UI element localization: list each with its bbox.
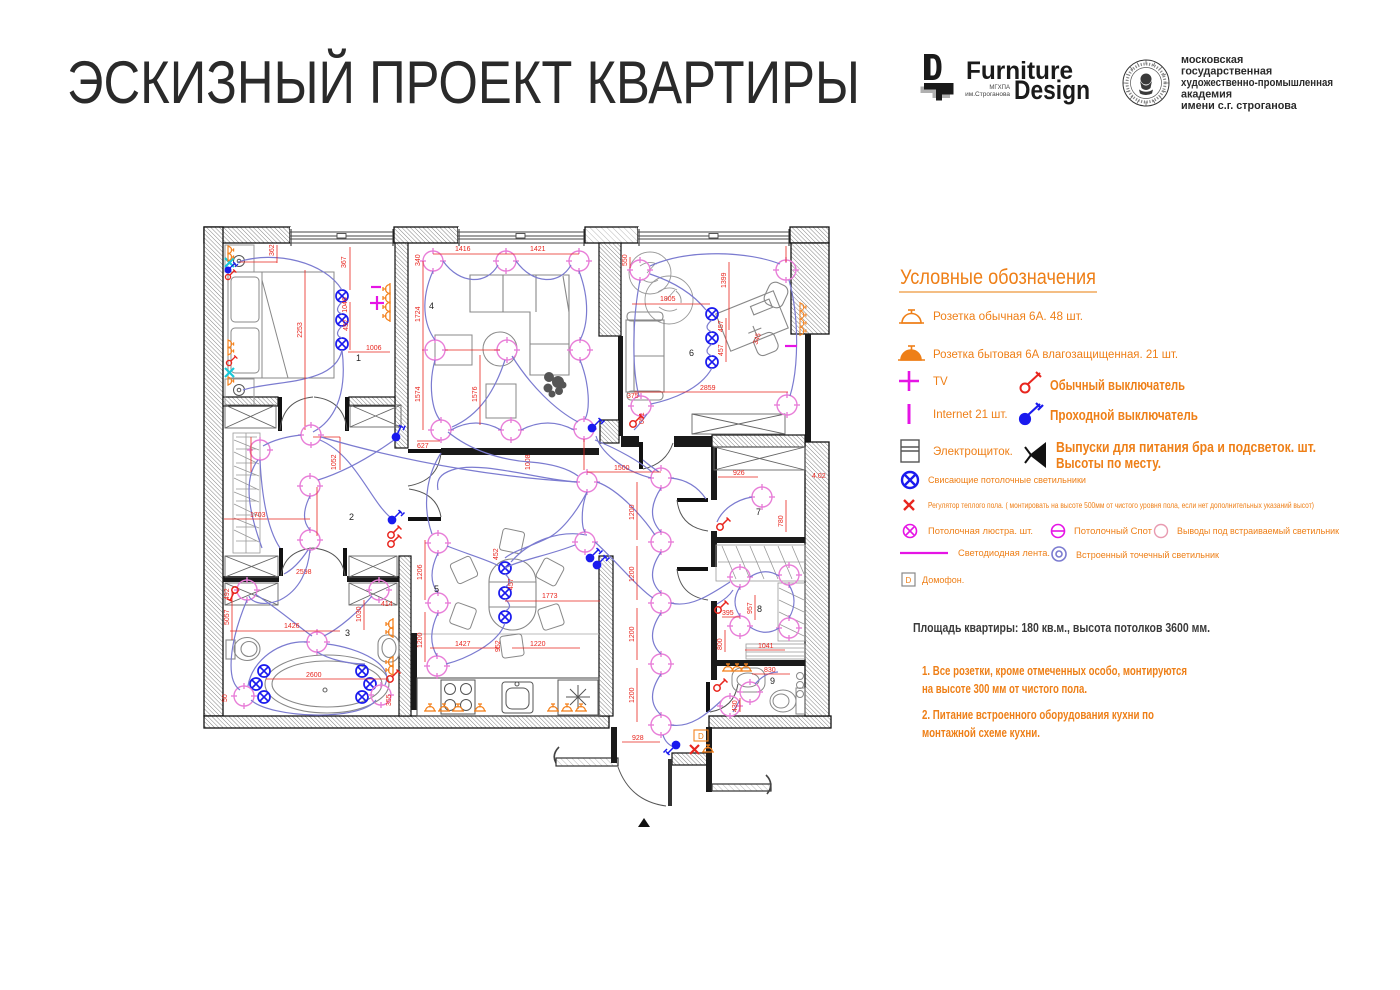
svg-text:051: 051 xyxy=(639,412,646,424)
svg-text:452: 452 xyxy=(493,548,500,560)
svg-text:Выпуски для питания бра и подс: Выпуски для питания бра и подсветок. шт. xyxy=(1056,440,1316,456)
svg-text:1500: 1500 xyxy=(614,465,630,472)
svg-text:1724: 1724 xyxy=(415,306,422,322)
svg-text:50: 50 xyxy=(222,694,229,702)
svg-text:7: 7 xyxy=(756,507,761,517)
svg-text:Домофон.: Домофон. xyxy=(922,575,964,585)
svg-text:TV: TV xyxy=(933,376,948,388)
svg-text:академия: академия xyxy=(1181,89,1232,101)
svg-text:362: 362 xyxy=(269,244,276,256)
svg-text:Потолочная люстра. шт.: Потолочная люстра. шт. xyxy=(928,526,1033,536)
svg-text:926: 926 xyxy=(733,470,745,477)
svg-text:4: 4 xyxy=(429,301,434,311)
svg-text:957: 957 xyxy=(747,602,754,614)
svg-text:государственная: государственная xyxy=(1181,66,1272,78)
svg-text:1006: 1006 xyxy=(366,345,382,352)
svg-text:414: 414 xyxy=(381,601,393,608)
svg-text:монтажной схеме кухни.: монтажной схеме кухни. xyxy=(922,726,1040,740)
svg-text:1206: 1206 xyxy=(417,564,424,580)
svg-text:2600: 2600 xyxy=(306,672,322,679)
svg-text:им.Строганова: им.Строганова xyxy=(965,91,1010,98)
svg-text:1: 1 xyxy=(356,353,361,363)
svg-text:Потолочный Спот: Потолочный Спот xyxy=(1074,526,1152,536)
svg-text:D: D xyxy=(698,732,704,741)
svg-text:Розетка обычная 6А. 48 шт.: Розетка обычная 6А. 48 шт. xyxy=(933,311,1083,323)
svg-text:1703: 1703 xyxy=(250,512,266,519)
svg-text:6: 6 xyxy=(689,348,694,358)
svg-text:Проходной выключатель: Проходной выключатель xyxy=(1050,408,1198,424)
svg-text:355: 355 xyxy=(386,694,393,706)
svg-text:1041: 1041 xyxy=(758,643,774,650)
svg-text:Internet 21 шт.: Internet 21 шт. xyxy=(933,409,1008,421)
svg-text:1805: 1805 xyxy=(660,296,676,303)
svg-text:Свисающие потолочные светильни: Свисающие потолочные светильники xyxy=(928,475,1086,485)
svg-text:1576: 1576 xyxy=(472,386,479,402)
svg-text:1574: 1574 xyxy=(415,386,422,402)
svg-text:457: 457 xyxy=(508,578,515,590)
svg-text:1. Все розетки, кроме отмеченн: 1. Все розетки, кроме отмеченных особо, … xyxy=(922,664,1187,678)
svg-text:1427: 1427 xyxy=(455,641,471,648)
svg-text:1200: 1200 xyxy=(629,687,636,703)
svg-text:2253: 2253 xyxy=(297,322,304,338)
svg-text:550: 550 xyxy=(622,254,629,266)
svg-text:Регулятор теплого пола. ( монт: Регулятор теплого пола. ( монтировать на… xyxy=(928,500,1314,510)
svg-text:1426: 1426 xyxy=(284,623,300,630)
svg-text:627: 627 xyxy=(417,443,429,450)
svg-text:2. Питание встроенного оборудо: 2. Питание встроенного оборудования кухн… xyxy=(922,708,1154,722)
svg-text:Обычный выключатель: Обычный выключатель xyxy=(1050,378,1185,394)
svg-text:D: D xyxy=(906,576,912,585)
svg-text:1046: 1046 xyxy=(342,297,349,313)
svg-text:Розетка бытовая 6А влагозащище: Розетка бытовая 6А влагозащищенная. 21 ш… xyxy=(933,349,1178,361)
svg-text:1200: 1200 xyxy=(417,632,424,648)
svg-text:художественно-промышленная: художественно-промышленная xyxy=(1181,77,1333,89)
svg-text:492: 492 xyxy=(224,588,231,600)
svg-text:Условные обозначения: Условные обозначения xyxy=(900,266,1096,289)
svg-text:1030: 1030 xyxy=(356,606,363,622)
svg-text:375: 375 xyxy=(627,393,639,400)
svg-text:367: 367 xyxy=(341,256,348,268)
svg-text:430: 430 xyxy=(732,700,739,712)
svg-text:800: 800 xyxy=(717,638,724,650)
svg-text:952: 952 xyxy=(495,640,502,652)
svg-text:1399: 1399 xyxy=(721,272,728,288)
svg-text:8: 8 xyxy=(757,604,762,614)
svg-text:9: 9 xyxy=(770,676,775,686)
svg-text:Электрощиток.: Электрощиток. xyxy=(933,446,1013,458)
svg-text:1421: 1421 xyxy=(530,246,546,253)
svg-text:340: 340 xyxy=(415,254,422,266)
svg-text:имени с.г. строганова: имени с.г. строганова xyxy=(1181,100,1298,112)
svg-text:1416: 1416 xyxy=(455,246,471,253)
svg-text:Design: Design xyxy=(1014,75,1090,105)
svg-text:4.02: 4.02 xyxy=(812,473,826,480)
svg-text:1052: 1052 xyxy=(331,454,338,470)
svg-text:московская: московская xyxy=(1181,54,1243,66)
svg-text:457: 457 xyxy=(718,344,725,356)
svg-text:2: 2 xyxy=(349,512,354,522)
svg-text:Светодиодная лента.: Светодиодная лента. xyxy=(958,548,1050,558)
svg-text:457: 457 xyxy=(718,320,725,332)
svg-text:830: 830 xyxy=(764,667,776,674)
svg-text:1200: 1200 xyxy=(629,504,636,520)
svg-text:928: 928 xyxy=(632,735,644,742)
svg-text:Выводы под встраиваемый светил: Выводы под встраиваемый светильник xyxy=(1177,526,1339,536)
svg-text:на высоте 300 мм от чистого по: на высоте 300 мм от чистого пола. xyxy=(922,682,1087,696)
svg-text:ЭСКИЗНЫЙ ПРОЕКТ КВАРТИРЫ: ЭСКИЗНЫЙ ПРОЕКТ КВАРТИРЫ xyxy=(67,49,860,116)
svg-text:1200: 1200 xyxy=(629,566,636,582)
svg-text:1220: 1220 xyxy=(530,641,546,648)
svg-text:1773: 1773 xyxy=(542,593,558,600)
svg-text:395: 395 xyxy=(722,610,734,617)
svg-text:3: 3 xyxy=(345,628,350,638)
svg-text:1200: 1200 xyxy=(629,626,636,642)
svg-text:780: 780 xyxy=(778,515,785,527)
svg-text:Площадь квартиры: 180 кв.м., в: Площадь квартиры: 180 кв.м., высота пото… xyxy=(913,620,1210,635)
svg-text:5057: 5057 xyxy=(224,609,231,625)
svg-text:Высоты по месту.: Высоты по месту. xyxy=(1056,456,1161,472)
svg-text:2859: 2859 xyxy=(700,385,716,392)
svg-text:Встроенный точечный светильник: Встроенный точечный светильник xyxy=(1076,550,1219,560)
svg-text:5: 5 xyxy=(434,584,439,594)
svg-text:457: 457 xyxy=(343,319,350,331)
